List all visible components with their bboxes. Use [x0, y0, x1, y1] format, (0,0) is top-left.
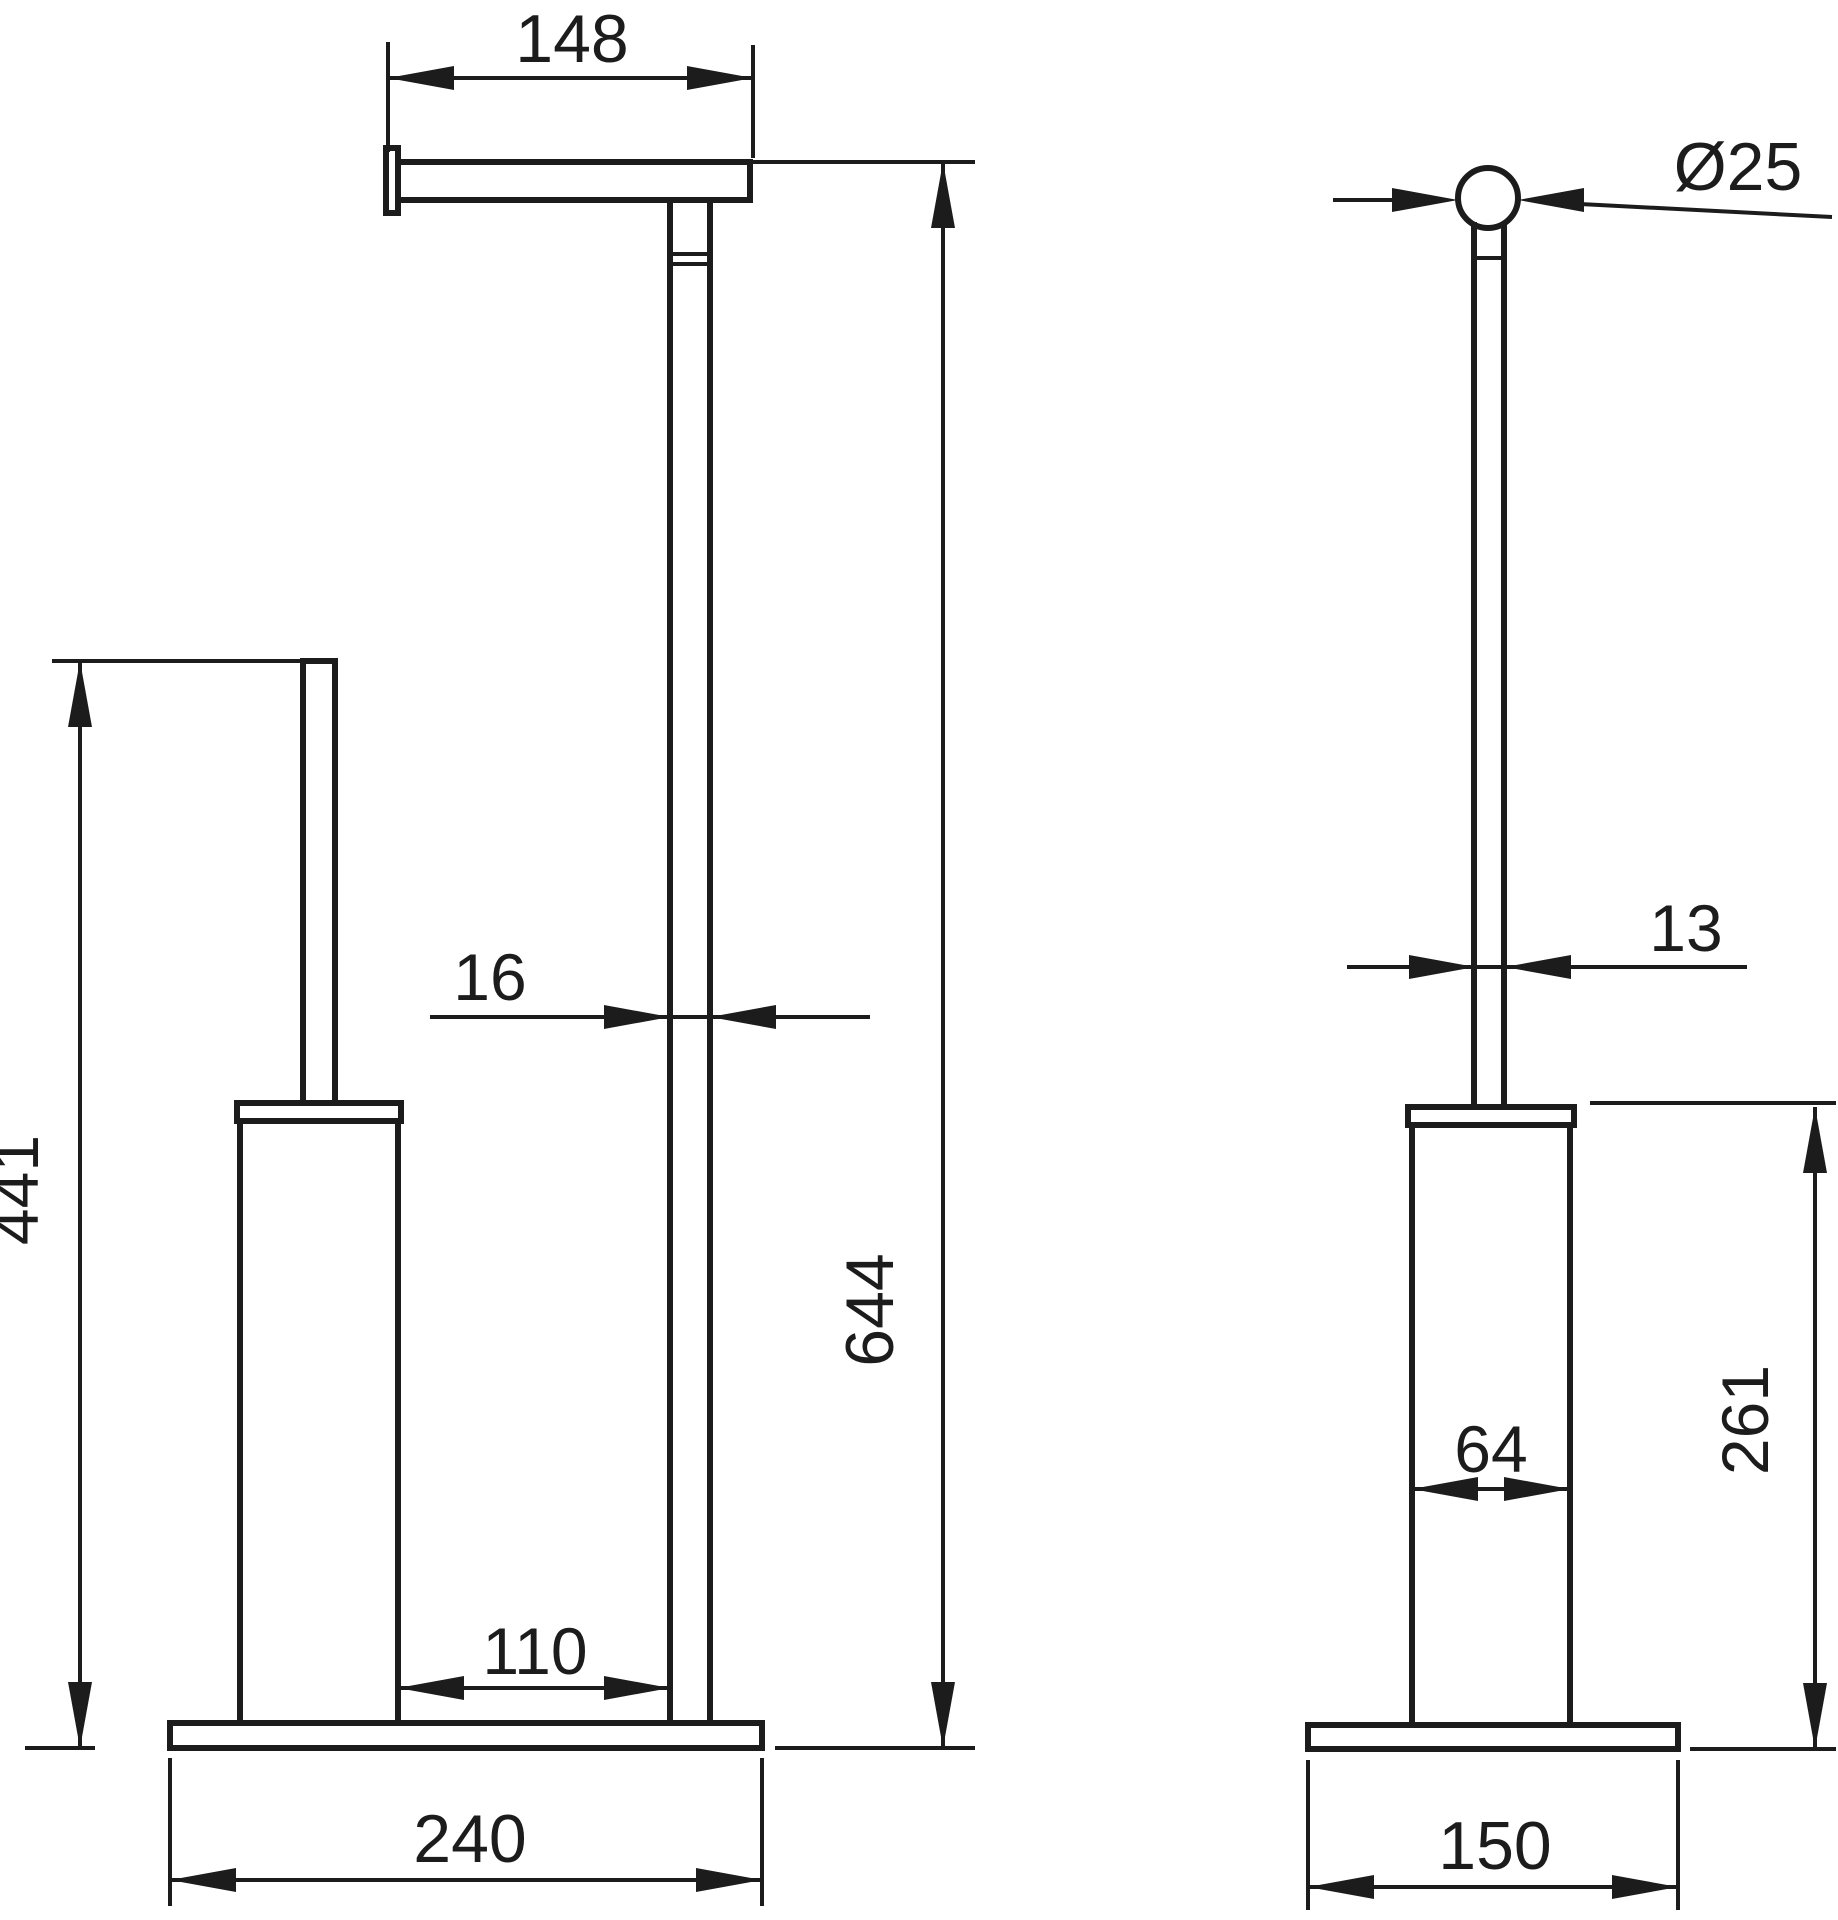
arrowhead-right: [604, 1676, 670, 1700]
dimension-base-depth: 150: [1308, 1760, 1678, 1910]
dimension-total-height: 644: [753, 162, 975, 1748]
technical-drawing: 148 16 644 441: [0, 0, 1838, 1920]
dim-label-total-height: 644: [832, 1253, 908, 1366]
arrowhead-right: [604, 1005, 670, 1029]
arrowhead-left: [1505, 955, 1571, 979]
arrowhead-down: [68, 1682, 92, 1748]
dimension-arm-width: 148: [388, 1, 753, 158]
dim-label-cup-height: 261: [1708, 1365, 1782, 1475]
brush-handle: [303, 661, 335, 1103]
brush-cup-body: [240, 1121, 398, 1723]
front-view: 148 16 644 441: [0, 1, 975, 1906]
dimension-cup-to-stem: 110: [398, 1614, 670, 1700]
dimension-cup-width: 64: [1412, 1412, 1570, 1501]
arrowhead-left: [398, 1676, 464, 1700]
arrowhead-down: [1803, 1683, 1827, 1749]
arrowhead-right: [1392, 188, 1458, 212]
paper-roll-arm: [398, 162, 750, 200]
arm-end-flange: [386, 148, 398, 213]
arrowhead-right: [1612, 1875, 1678, 1899]
dim-label-arm-width: 148: [515, 1, 628, 77]
arrowhead-down: [931, 1682, 955, 1748]
arrowhead-left: [388, 66, 454, 90]
drawing-page: 148 16 644 441: [0, 0, 1838, 1920]
arrowhead-left: [1518, 188, 1584, 212]
arrowhead-left: [1308, 1875, 1374, 1899]
dim-label-cup-to-stem: 110: [482, 1614, 587, 1688]
side-view: Ø25 13 64 261: [1308, 129, 1836, 1910]
dim-label-cup-width: 64: [1454, 1412, 1527, 1486]
dim-label-base-depth: 150: [1438, 1808, 1551, 1884]
dimension-knob-diameter: Ø25: [1333, 129, 1832, 217]
arrowhead-left: [170, 1868, 236, 1892]
arrowhead-up: [1803, 1107, 1827, 1173]
dimension-stem-width: 16: [430, 940, 870, 1029]
arrowhead-right: [696, 1868, 762, 1892]
side-base-plate: [1308, 1725, 1678, 1749]
knob-ball: [1458, 168, 1518, 228]
arrowhead-right: [687, 66, 753, 90]
leader-line-right: [1580, 204, 1832, 217]
dimension-rod-width: 13: [1347, 891, 1747, 979]
dim-label-base-width: 240: [413, 1801, 526, 1877]
dim-label-rod-width: 13: [1649, 891, 1722, 965]
dim-label-knob-diameter: Ø25: [1674, 129, 1803, 205]
arrowhead-right: [1409, 955, 1475, 979]
arrowhead-up: [68, 661, 92, 727]
dim-label-stem-width: 16: [453, 940, 526, 1014]
base-plate: [170, 1723, 762, 1748]
dimension-base-width: 240: [170, 1758, 762, 1906]
stem-collar-joint: [670, 254, 710, 264]
dimension-brush-height: 441: [0, 661, 333, 1748]
dimension-cup-height: 261: [1590, 1103, 1836, 1749]
arrowhead-up: [931, 162, 955, 228]
arrowhead-left: [710, 1005, 776, 1029]
dim-label-brush-height: 441: [0, 1135, 52, 1245]
